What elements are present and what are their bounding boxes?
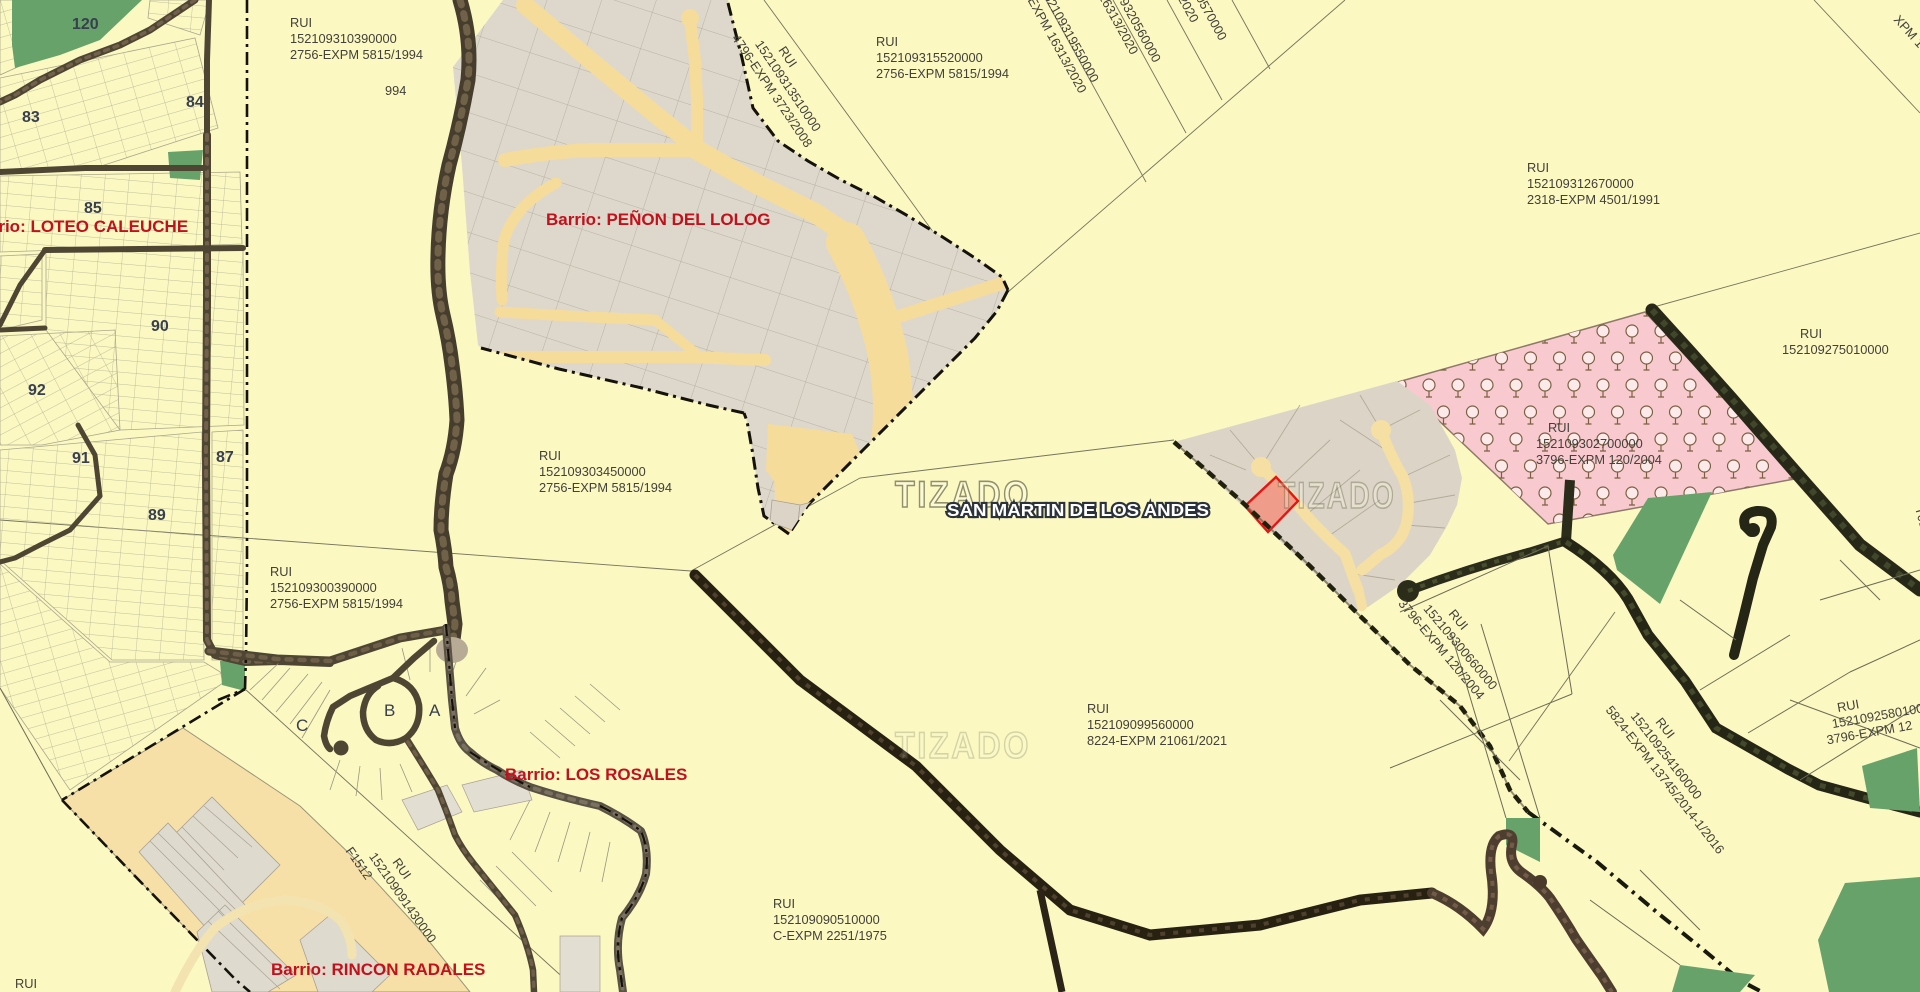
svg-text:120: 120 [72, 16, 99, 33]
svg-text:RUI: RUI [270, 564, 292, 579]
svg-text:84: 84 [186, 94, 204, 111]
svg-text:152109099560000: 152109099560000 [1087, 717, 1194, 732]
svg-text:8224-EXPM 21061/2021: 8224-EXPM 21061/2021 [1087, 733, 1227, 748]
svg-text:152109300390000: 152109300390000 [270, 580, 377, 595]
svg-text:152109302700000: 152109302700000 [1536, 436, 1643, 451]
svg-text:SAN MARTIN DE LOS ANDES: SAN MARTIN DE LOS ANDES [947, 500, 1209, 520]
svg-text:Barrio: RINCON RADALES: Barrio: RINCON RADALES [271, 960, 485, 979]
svg-text:C-EXPM 2251/1975: C-EXPM 2251/1975 [773, 928, 887, 943]
svg-text:C: C [296, 716, 308, 735]
svg-text:92: 92 [28, 382, 46, 399]
svg-text:2318-EXPM 4501/1991: 2318-EXPM 4501/1991 [1527, 192, 1660, 207]
svg-text:89: 89 [148, 507, 166, 524]
svg-text:152109090510000: 152109090510000 [773, 912, 880, 927]
svg-text:83: 83 [22, 109, 40, 126]
svg-text:152109312670000: 152109312670000 [1527, 176, 1634, 191]
svg-text:152109275010000: 152109275010000 [1782, 342, 1889, 357]
svg-text:87: 87 [216, 449, 234, 466]
svg-text:3796-EXPM 120/2004: 3796-EXPM 120/2004 [1536, 452, 1662, 467]
svg-text:RUI: RUI [1548, 420, 1570, 435]
svg-text:RUI: RUI [1800, 326, 1822, 341]
svg-text:Barrio: LOS ROSALES: Barrio: LOS ROSALES [505, 765, 687, 784]
svg-text:152109310390000: 152109310390000 [290, 31, 397, 46]
svg-text:Barrio: PEÑON DEL LOLOG: Barrio: PEÑON DEL LOLOG [546, 209, 771, 229]
svg-text:RUI: RUI [773, 896, 795, 911]
svg-text:91: 91 [72, 450, 90, 467]
svg-text:2756-EXPM 5815/1994: 2756-EXPM 5815/1994 [539, 480, 672, 495]
svg-text:RUI: RUI [15, 976, 37, 991]
svg-text:RUI: RUI [1527, 160, 1549, 175]
svg-text:TIZADO: TIZADO [1278, 475, 1396, 516]
svg-text:152109315520000: 152109315520000 [876, 50, 983, 65]
svg-text:B: B [384, 701, 395, 720]
svg-text:RUI: RUI [1087, 701, 1109, 716]
svg-text:2756-EXPM 5815/1994: 2756-EXPM 5815/1994 [876, 66, 1009, 81]
svg-text:152109303450000: 152109303450000 [539, 464, 646, 479]
svg-text:Barrio: LOTEO CALEUCHE: Barrio: LOTEO CALEUCHE [0, 217, 188, 236]
svg-text:2756-EXPM 5815/1994: 2756-EXPM 5815/1994 [290, 47, 423, 62]
svg-text:RUI: RUI [539, 448, 561, 463]
svg-text:A: A [429, 701, 441, 720]
svg-text:TIZADO: TIZADO [895, 725, 1031, 766]
svg-text:90: 90 [151, 318, 169, 335]
svg-text:RUI: RUI [876, 34, 898, 49]
svg-text:2756-EXPM 5815/1994: 2756-EXPM 5815/1994 [270, 596, 403, 611]
svg-text:994: 994 [385, 83, 406, 98]
svg-text:85: 85 [84, 200, 102, 217]
svg-text:RUI: RUI [290, 15, 312, 30]
